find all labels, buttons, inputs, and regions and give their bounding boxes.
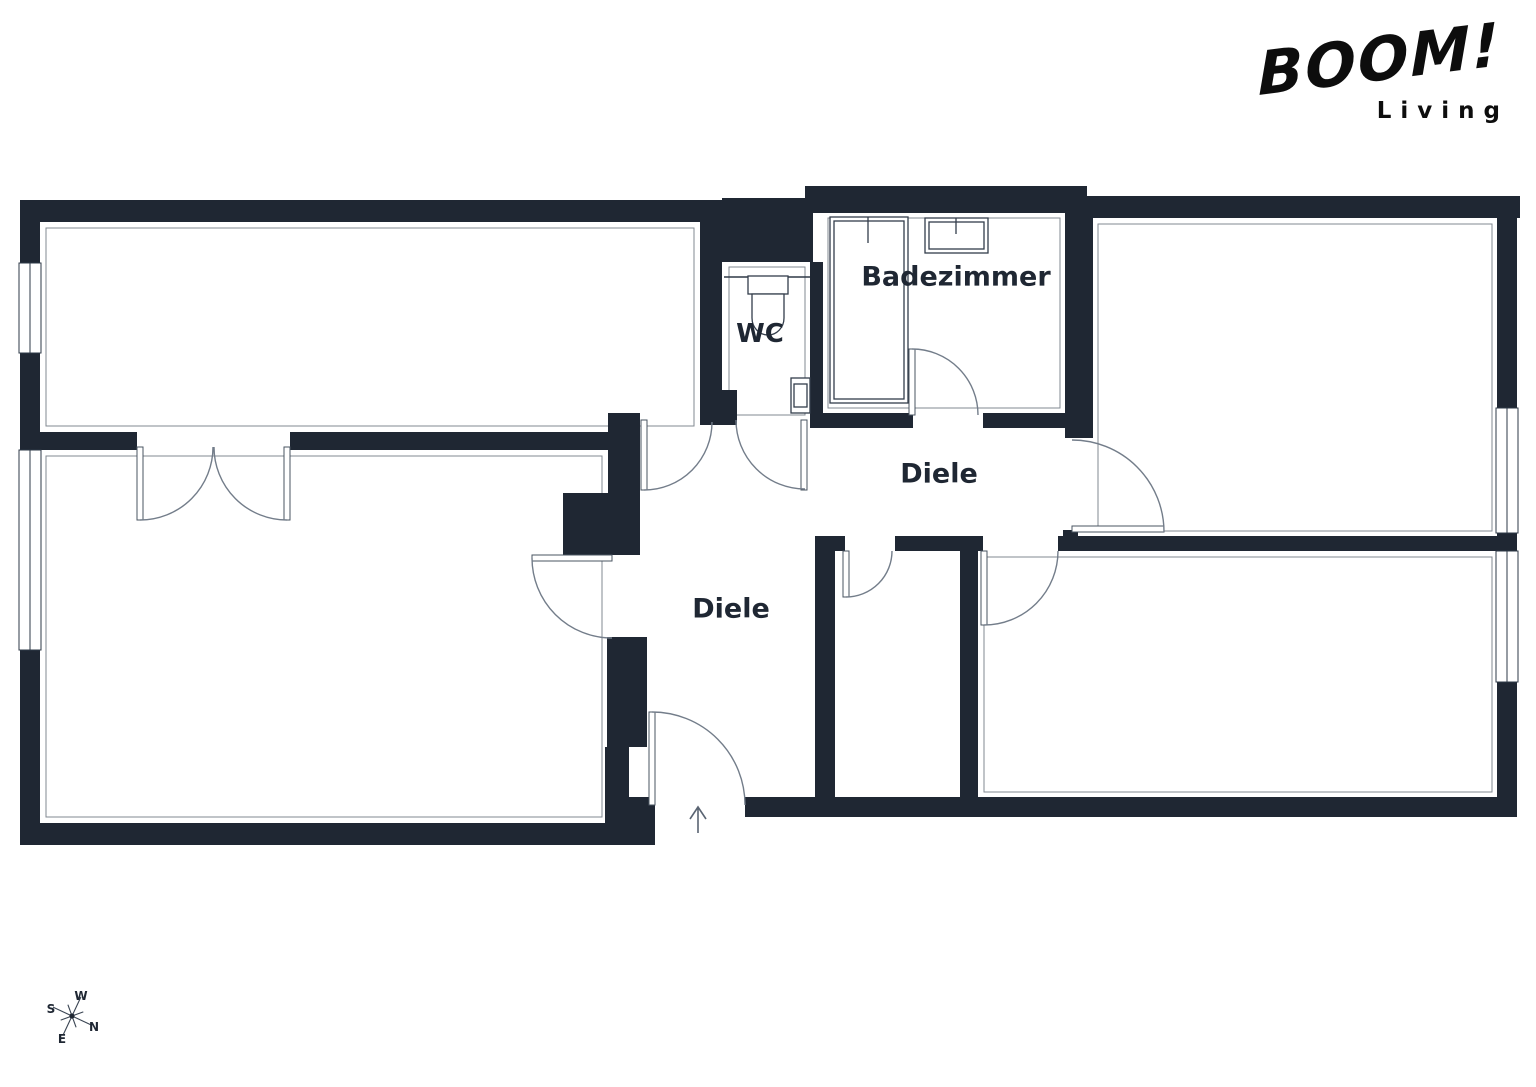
wall-tl-east: [700, 200, 722, 425]
label-diele-lower: Diele: [692, 594, 770, 625]
outline-room-bottom-right: [984, 557, 1492, 792]
wall-closet-west: [815, 536, 835, 797]
door-top-left-room: [641, 420, 712, 490]
wall-stub-center: [608, 413, 640, 555]
compass-rose: W S N E: [47, 989, 99, 1046]
wall-left-lower: [20, 650, 40, 845]
label-badezimmer: Badezimmer: [861, 262, 1050, 293]
wall-right-lower: [1497, 682, 1517, 817]
label-wc: WC: [736, 319, 784, 349]
wall-br-west: [960, 536, 978, 797]
wall-chimney-block: [563, 493, 608, 555]
wall-divider-right-c: [1058, 536, 1497, 551]
compass-label-w: W: [74, 989, 87, 1003]
wall-wc-top-block: [722, 198, 813, 262]
floorplan-drawing: W S N E: [0, 0, 1536, 1087]
door-wc: [736, 420, 807, 490]
wall-tl-east-foot: [722, 390, 737, 425]
window-left-upper: [19, 263, 41, 353]
wall-top-left-section: [20, 200, 807, 222]
wall-divider-left-b: [290, 432, 608, 450]
wall-top-mid-section: [805, 186, 1087, 213]
wall-bl-east-upper: [607, 637, 647, 747]
wc-sink: [791, 378, 810, 413]
wall-right-block: [1497, 533, 1517, 551]
window-left-lower: [19, 450, 41, 650]
bath-sink: [925, 218, 988, 253]
wall-bad-south-a: [815, 413, 913, 428]
entrance-arrow-icon: [690, 807, 706, 833]
wall-divider-left-a: [20, 432, 137, 450]
wall-wc-east: [810, 262, 823, 428]
wall-bottom-left: [20, 823, 655, 845]
brand-logo: BOOM! Living: [1257, 30, 1502, 124]
door-entrance: [649, 712, 745, 805]
wall-bottom-right: [745, 797, 1497, 817]
wall-right-upper: [1497, 196, 1517, 408]
outline-room-bottom-left: [46, 456, 602, 817]
window-right-lower: [1496, 551, 1518, 682]
wall-bad-south-b: [983, 413, 1073, 428]
compass-label-s: S: [47, 1002, 56, 1016]
shower: [830, 217, 908, 403]
door-double-left-rooms: [137, 447, 290, 520]
door-closet: [843, 551, 892, 597]
wall-tr-west: [1065, 212, 1093, 438]
label-diele-upper: Diele: [900, 459, 978, 490]
door-bottom-right-room: [981, 551, 1058, 625]
wall-bl-east-lower: [605, 747, 629, 823]
outline-room-top-left: [46, 228, 694, 426]
floorplan-page: W S N E Badezimmer WC Diele Diele BOOM! …: [0, 0, 1536, 1087]
wall-left-upper: [20, 200, 40, 263]
door-badezimmer: [909, 349, 978, 415]
compass-label-e: E: [58, 1032, 66, 1046]
wall-top-right-section: [1085, 196, 1520, 218]
compass-label-n: N: [89, 1020, 99, 1034]
door-top-right-room: [1072, 440, 1164, 532]
door-bottom-left-room: [532, 555, 612, 638]
outline-room-top-right: [1098, 224, 1492, 531]
window-right-upper: [1496, 408, 1518, 533]
